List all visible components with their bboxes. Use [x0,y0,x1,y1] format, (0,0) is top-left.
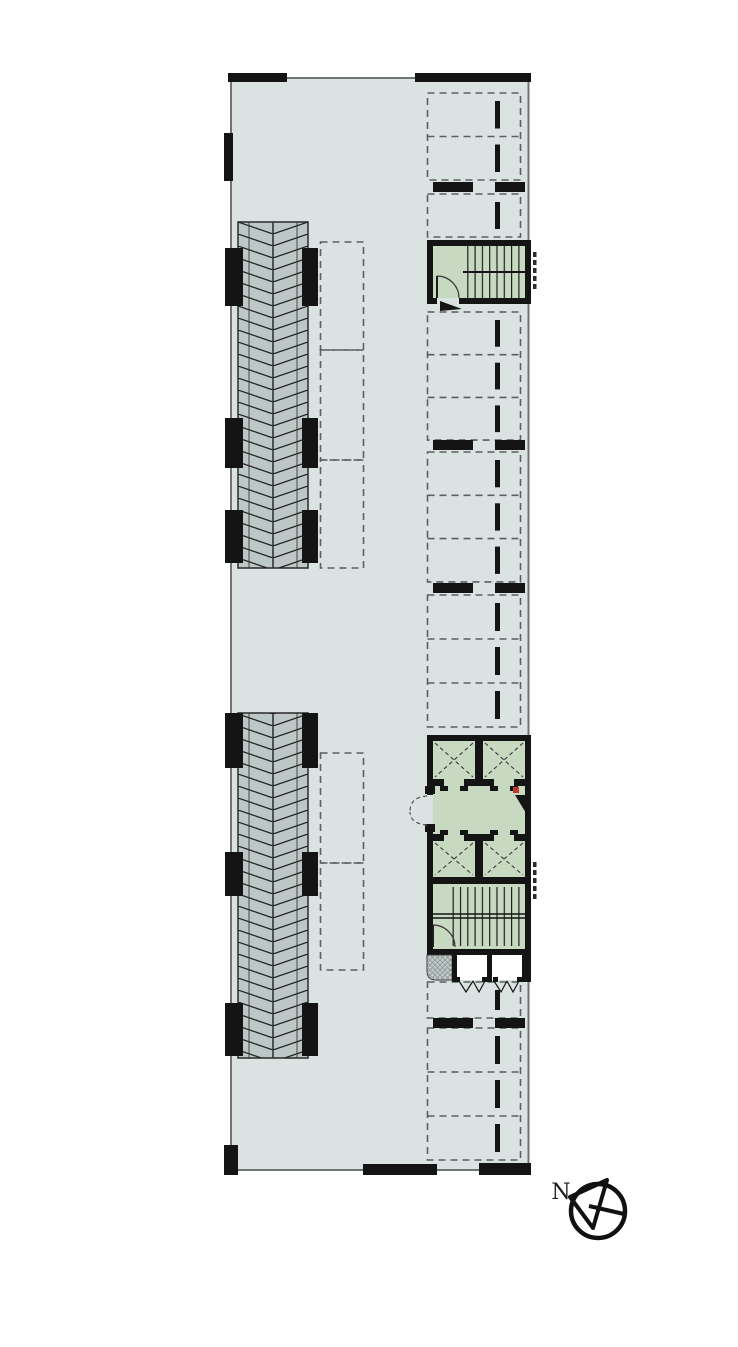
stall-tick [495,202,500,229]
door-jamb [493,977,498,982]
stall-tick [495,1080,500,1108]
stall-tick [495,647,500,675]
stall-tick [495,603,500,631]
ramp-pillar [225,713,243,768]
compass-tail [589,1206,624,1214]
parking-pillar [433,182,473,192]
parking-pillar [495,182,525,192]
stall-tick [495,405,500,432]
room-wall [487,955,492,982]
stall-tick [495,363,500,390]
ramp-pillar [302,418,318,468]
stair-treads [448,887,521,946]
parking-pillar [433,1018,473,1028]
floor-plan-canvas: N [0,0,738,1347]
ramp-pillar [302,852,318,896]
core-wall [433,877,525,884]
ramp-pillar [225,418,243,468]
shaft-divider [475,834,483,884]
core-label-marks [533,862,537,899]
stall-tick [495,101,500,129]
wall-segment [224,1145,238,1175]
north-label: N [551,1180,570,1205]
stall-tick [495,320,500,347]
stall-tick [495,460,500,487]
wall-segment [228,73,287,82]
stall-tick [495,145,500,173]
ramp-pillar [225,510,243,563]
wall-segment [479,1163,531,1175]
parking-pillar [495,583,525,593]
wall-segment [224,133,233,181]
service-room [457,955,487,980]
wall-segment [363,1164,437,1175]
alarm-marker [513,787,519,793]
room-wall [522,955,531,982]
ramp-pillar [302,510,318,563]
parking-pillar [433,583,473,593]
door-jamb [455,977,460,982]
shaft-hatch-pattern [427,955,452,980]
parking-pillar [495,1018,525,1028]
stall-tick [495,503,500,530]
ramp-pillar [225,1003,243,1056]
ramp-pillar [302,713,318,768]
ramp-pillar [302,1003,318,1056]
parking-pillar [433,440,473,450]
stall-tick [495,990,500,1010]
stairwell-top [427,240,537,311]
stall-tick [495,691,500,719]
north-compass: N [551,1180,625,1238]
stair-label-marks [533,252,537,289]
stall-tick [495,1036,500,1064]
service-room [492,955,522,980]
wall-segment [415,73,531,82]
ramp-pillar [225,248,243,306]
parking-pillar [495,440,525,450]
compass-arrow [570,1180,607,1228]
stall-tick [495,1124,500,1152]
door-jamb [517,977,522,982]
door-jamb [482,977,487,982]
stall-tick [495,547,500,574]
ramp-pillar [225,852,243,896]
core [410,735,537,955]
ramp-pillar [302,248,318,306]
